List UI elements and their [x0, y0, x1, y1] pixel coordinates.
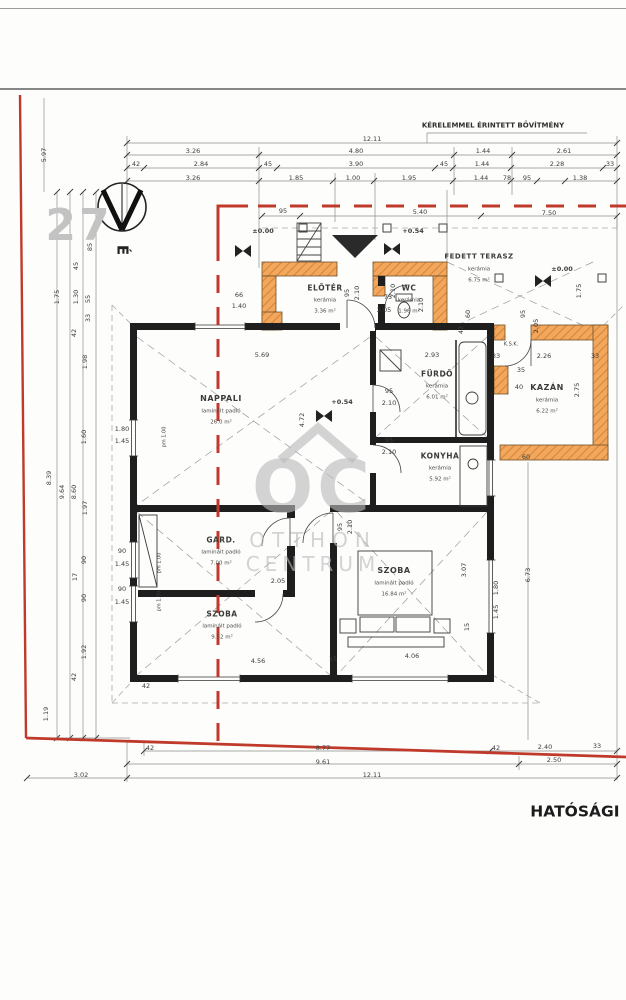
watermark-roof-icon — [284, 428, 352, 457]
floor-plan-svg — [0, 0, 626, 1000]
entrance-opening — [340, 322, 375, 331]
bed — [340, 551, 450, 647]
drawing-sheet: 12.113.264.801.442.61422.84453.90451.442… — [0, 0, 626, 1000]
windows — [129, 323, 496, 683]
property-boundary-lines — [20, 95, 626, 757]
toilet — [396, 294, 412, 318]
walls — [130, 276, 494, 682]
porch-posts — [299, 224, 606, 282]
washing-machine — [380, 350, 401, 371]
wardrobe — [139, 515, 157, 587]
dimension-ticks — [24, 140, 620, 781]
bathtub — [459, 342, 486, 435]
north-arrow-icon — [98, 183, 146, 231]
entrance-arrow-icon — [332, 235, 378, 258]
kitchen-counter — [460, 446, 487, 506]
